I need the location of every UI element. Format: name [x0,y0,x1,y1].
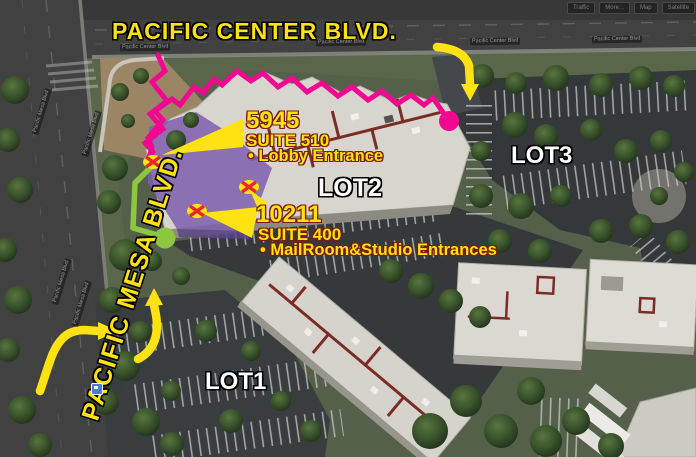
road-badge-center-1: Pacific Center Blvd [120,44,171,52]
lot3-label: LOT3 [511,144,572,168]
callout-5945-note: • Lobby Entrance [248,148,383,165]
map-toolbar: Traffic More... Map Satellite [567,2,695,14]
more-button[interactable]: More... [599,2,630,14]
road-badge-center-4: Pacific Center Blvd [592,36,643,44]
road-badge-center-3: Pacific Center Blvd [470,38,521,46]
x-mark-mailroom [187,204,207,218]
lot2-label: LOT2 [318,176,382,201]
building-right-b [586,259,696,355]
callout-10211-address: 10211 [256,203,321,227]
bus-stop-icon[interactable] [91,383,103,395]
route-end-dot-magenta [439,111,459,131]
lot1-label: LOT1 [205,370,266,394]
annotated-campus-map: PACIFIC CENTER BLVD. PACIFIC MESA BLVD. … [0,0,696,457]
road-badge-center-2: Pacific Center Blvd [316,39,367,47]
map-button[interactable]: Map [634,2,658,14]
satellite-button[interactable]: Satellite [662,2,695,14]
x-mark-studio [239,180,259,194]
callout-10211-note: • MailRoom&Studio Entrances [260,242,497,259]
callout-5945-address: 5945 [246,109,299,133]
traffic-button[interactable]: Traffic [567,2,595,14]
